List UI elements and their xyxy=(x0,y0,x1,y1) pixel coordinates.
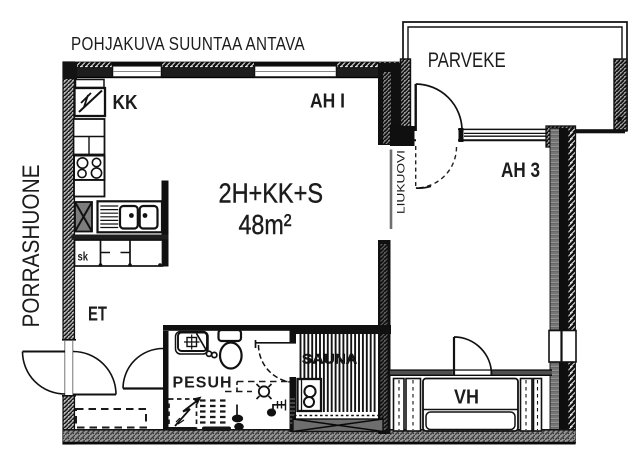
svg-text:PESUH: PESUH xyxy=(173,375,233,392)
svg-text:SAUNA: SAUNA xyxy=(302,352,357,367)
svg-text:ET: ET xyxy=(88,304,107,326)
svg-text:sk: sk xyxy=(78,250,89,264)
svg-text:POHJAKUVA SUUNTAA ANTAVA: POHJAKUVA SUUNTAA ANTAVA xyxy=(71,33,305,54)
svg-text:PORRASHUONE: PORRASHUONE xyxy=(18,165,45,328)
svg-text:48m²: 48m² xyxy=(239,209,292,240)
svg-text:KK: KK xyxy=(113,91,138,114)
svg-text:VH: VH xyxy=(454,387,479,409)
svg-text:PARVEKE: PARVEKE xyxy=(428,49,506,72)
svg-text:LIUKUOVI: LIUKUOVI xyxy=(396,150,408,214)
svg-text:AH 3: AH 3 xyxy=(501,159,540,182)
svg-text:2H+KK+S: 2H+KK+S xyxy=(219,178,324,209)
svg-text:AH I: AH I xyxy=(310,90,345,113)
